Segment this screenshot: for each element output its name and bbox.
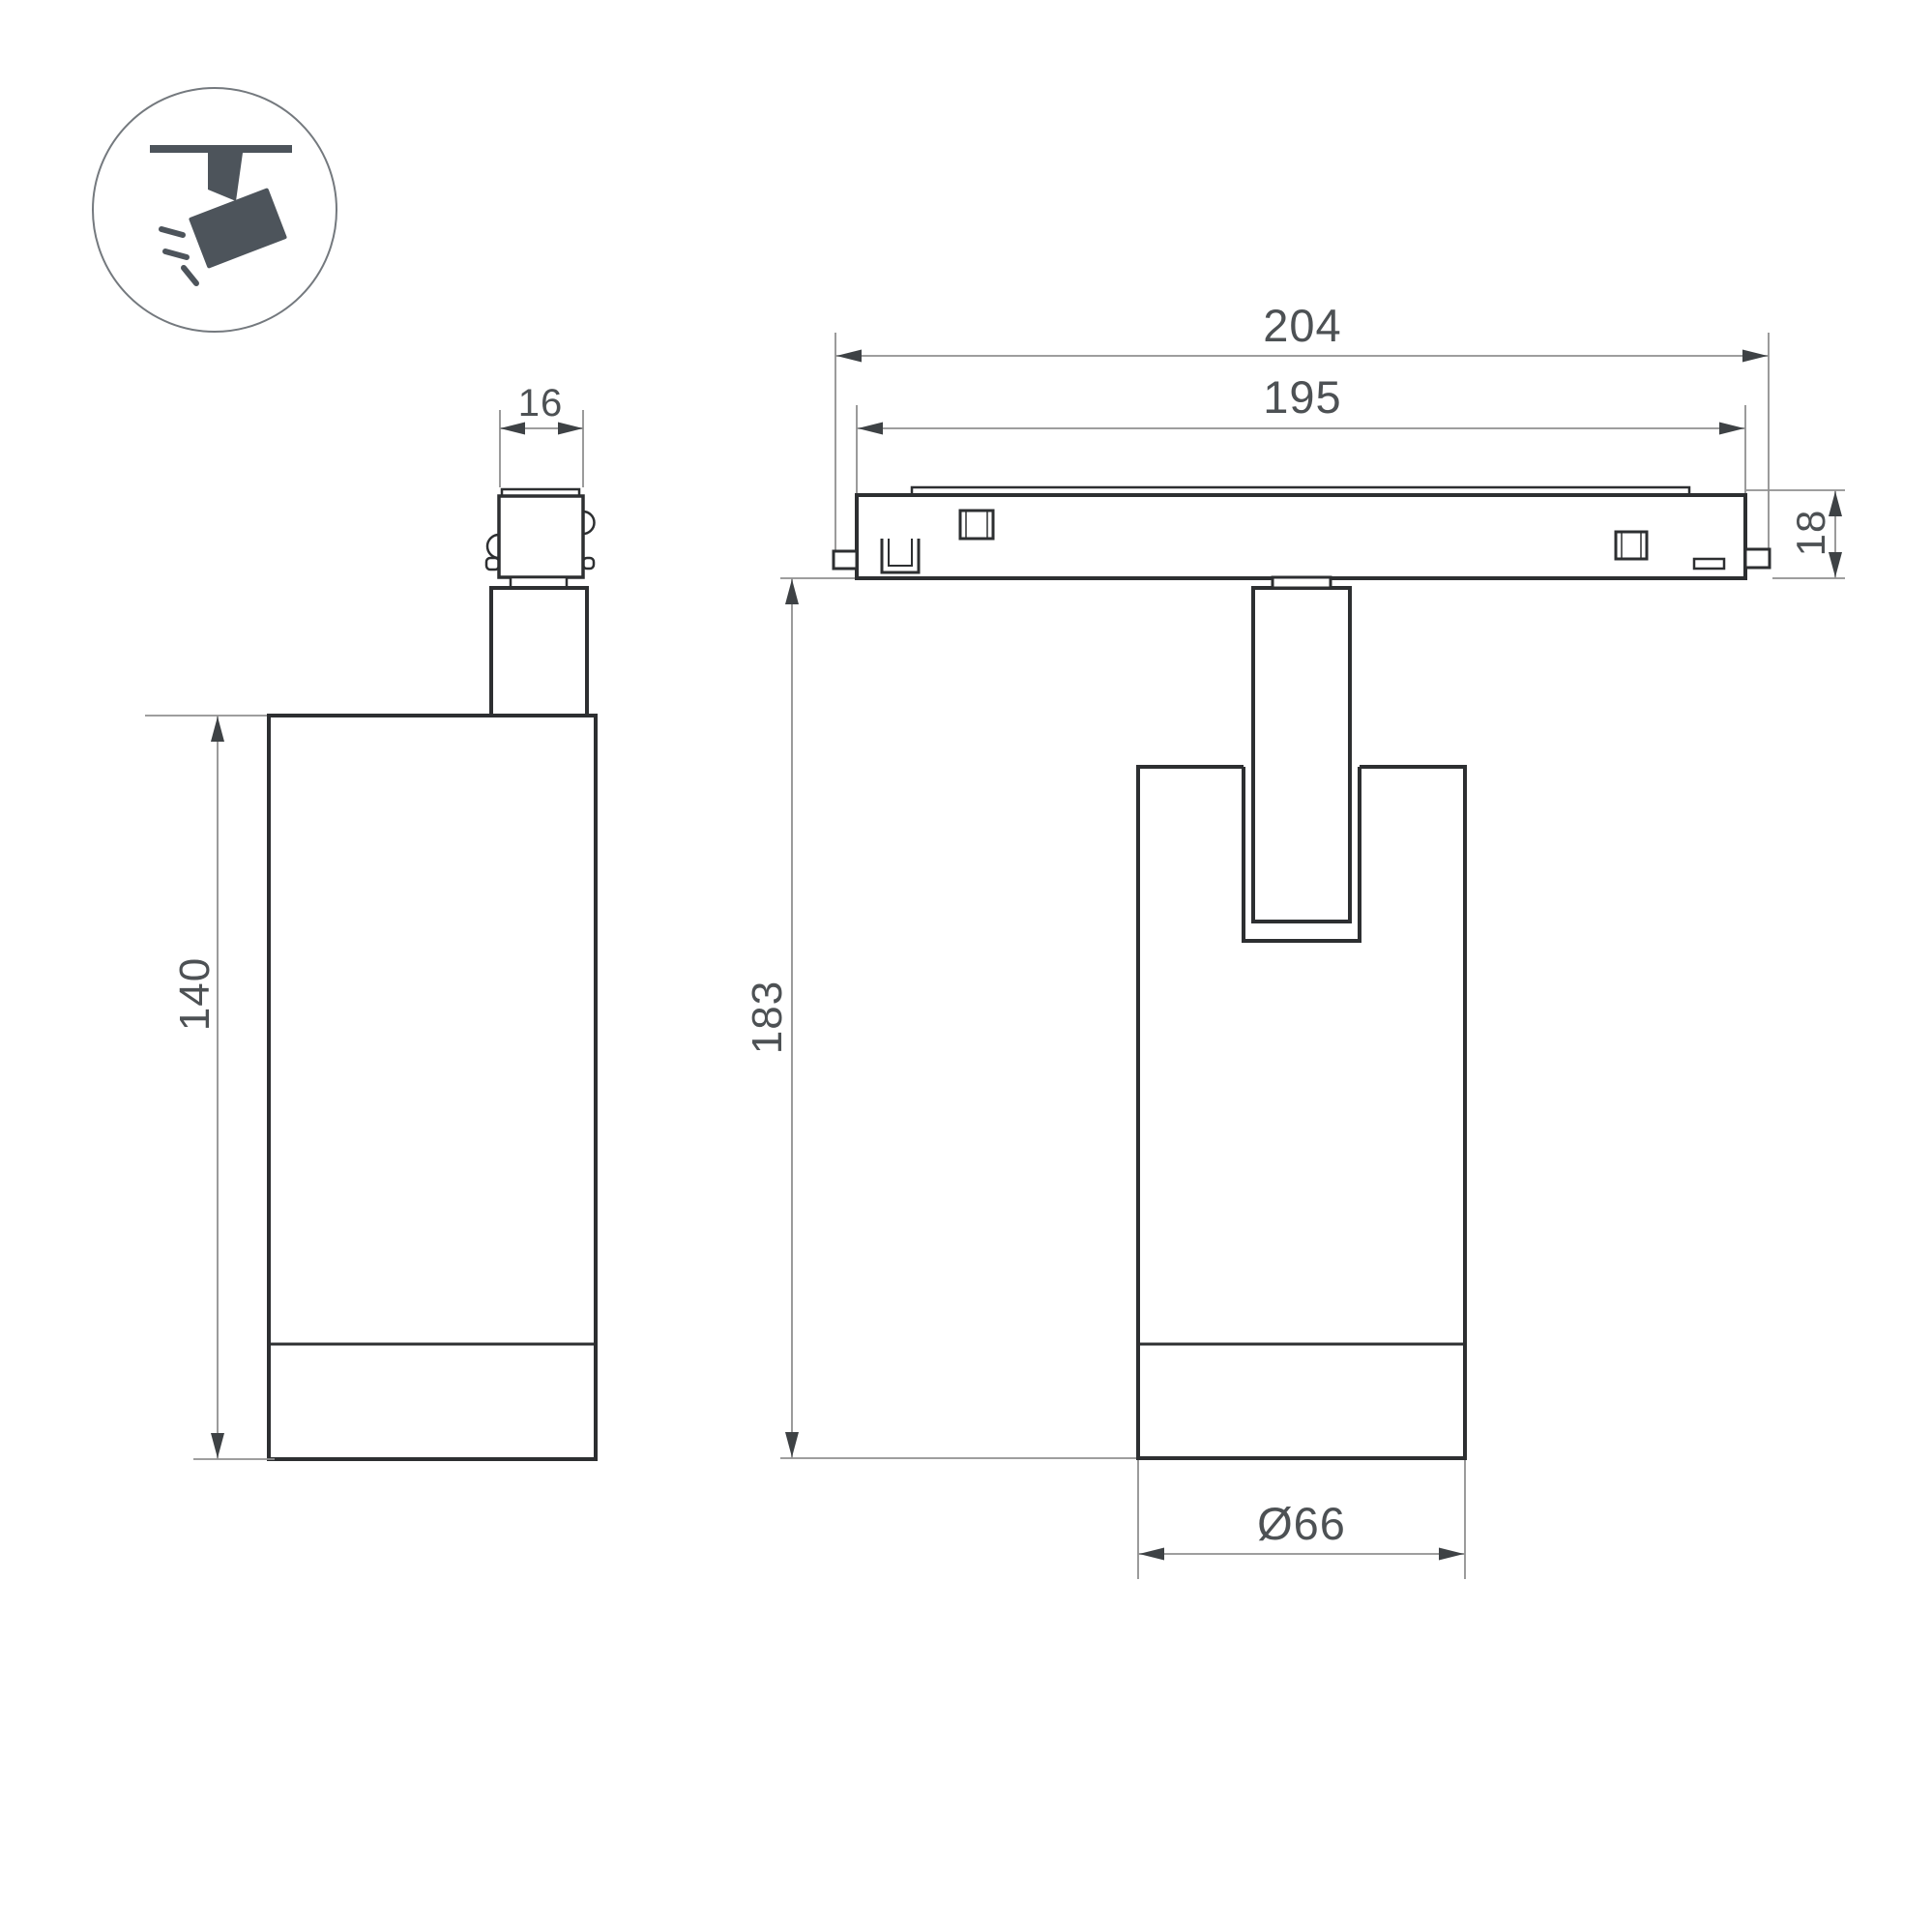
dim-label-overall-length: 204 — [1263, 300, 1341, 351]
stem — [491, 588, 587, 716]
side-view: 16 140 — [145, 382, 596, 1459]
track-slot-right — [1694, 559, 1724, 569]
track-adapter — [499, 496, 583, 577]
dimension-body-height: 140 — [145, 716, 275, 1459]
front-view: 204 195 — [744, 300, 1845, 1579]
drawing-canvas: 16 140 204 — [0, 0, 1932, 1932]
dim-label-track-length: 195 — [1263, 371, 1341, 423]
dimension-drawing: 16 140 204 — [0, 0, 1932, 1932]
dim-label-adapter-width: 16 — [518, 382, 564, 424]
dimension-total-height: 183 — [744, 578, 1136, 1458]
track-contact-right — [1616, 532, 1647, 559]
dim-label-track-height: 18 — [1788, 510, 1833, 557]
dim-label-body-height: 140 — [171, 957, 219, 1031]
adapter-ear-left — [487, 535, 499, 558]
track-end-tab-right — [1745, 549, 1770, 568]
dimension-track-length: 195 — [857, 371, 1745, 494]
stem-front — [1253, 588, 1350, 922]
lamp-body-side — [269, 716, 596, 1459]
dimension-body-diameter: Ø66 — [1138, 1460, 1465, 1579]
adapter-hook-left — [486, 558, 499, 570]
track-contact-left — [960, 511, 993, 539]
stem-cap — [1273, 577, 1331, 588]
dim-label-total-height: 183 — [744, 981, 791, 1054]
dim-label-body-diameter: Ø66 — [1257, 1498, 1346, 1549]
icon-ceiling-bar — [150, 145, 292, 153]
dimension-adapter-width: 16 — [500, 382, 583, 487]
track-end-tab-left — [834, 551, 857, 569]
track-spotlight-icon — [93, 88, 337, 332]
